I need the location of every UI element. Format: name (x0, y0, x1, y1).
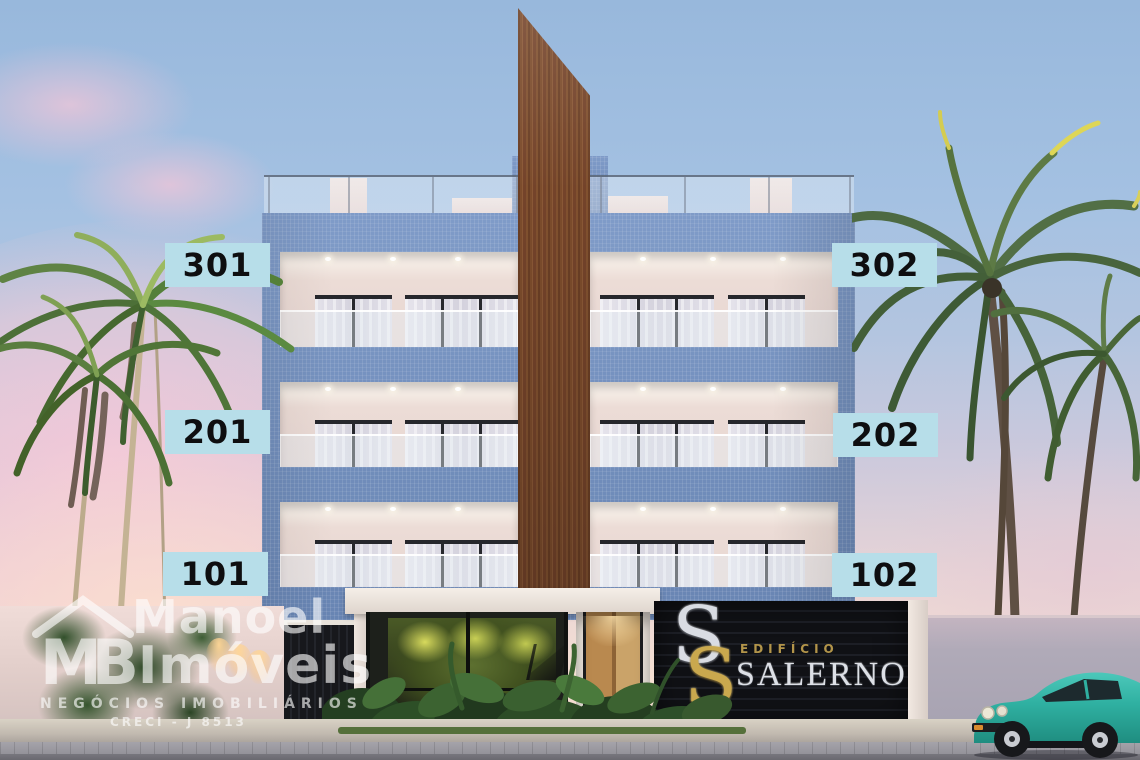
svg-text:MB: MB (40, 626, 135, 697)
watermark-tagline: NEGÓCIOS IMOBILIÁRIOS (40, 696, 363, 712)
unit-label-101: 101 (163, 552, 268, 596)
wood-feature-panel (518, 8, 590, 612)
watermark-name-line2: Imóveis (138, 636, 372, 696)
rendered-building-scene: S S EDIFÍCIO SALERNO (0, 0, 1140, 760)
watermark-license: CRECI - J 8513 (110, 715, 247, 729)
unit-label-302: 302 (832, 243, 937, 287)
unit-label-301: 301 (165, 243, 270, 287)
unit-label-102: 102 (832, 553, 937, 597)
unit-label-202: 202 (833, 413, 938, 457)
realtor-watermark: MB Manoel Imóveis NEGÓCIOS IMOBILIÁRIOS … (0, 560, 960, 760)
pink-cloud (60, 130, 280, 240)
mb-house-logo-icon: MB (28, 592, 138, 697)
classic-teal-car (972, 655, 1140, 760)
unit-label-201: 201 (165, 410, 270, 454)
